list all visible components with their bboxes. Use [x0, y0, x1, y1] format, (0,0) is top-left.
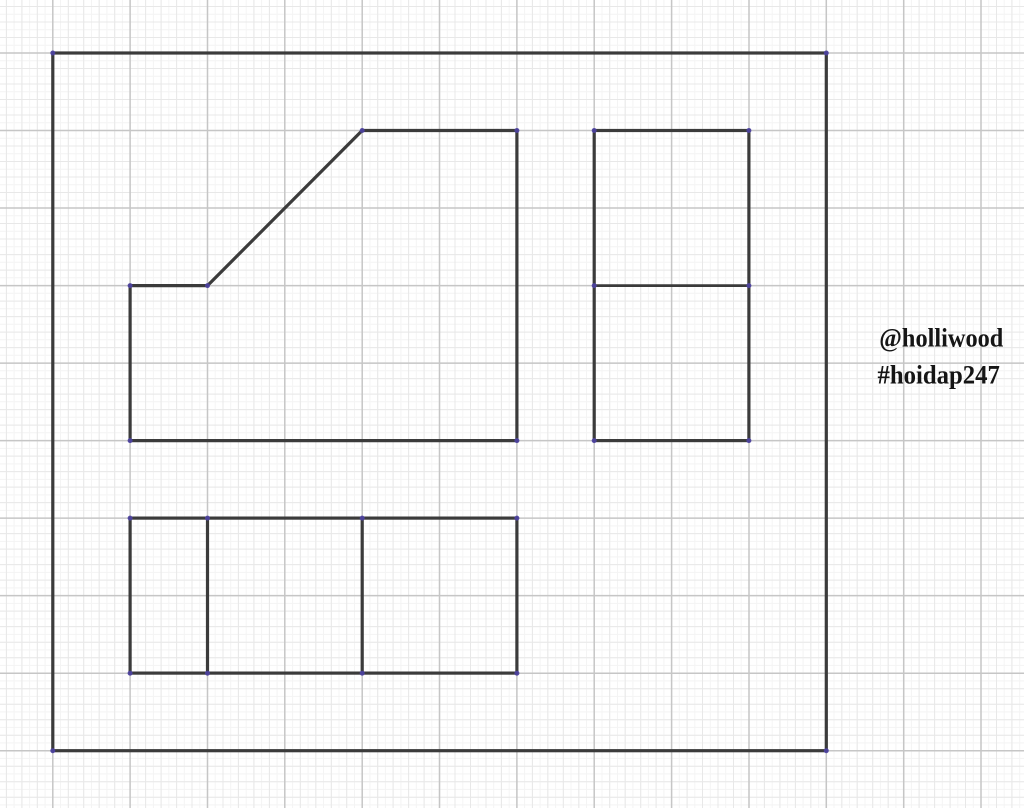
svg-text:@holliwood: @holliwood [879, 324, 1003, 353]
svg-text:#hoidap247: #hoidap247 [878, 361, 1000, 390]
